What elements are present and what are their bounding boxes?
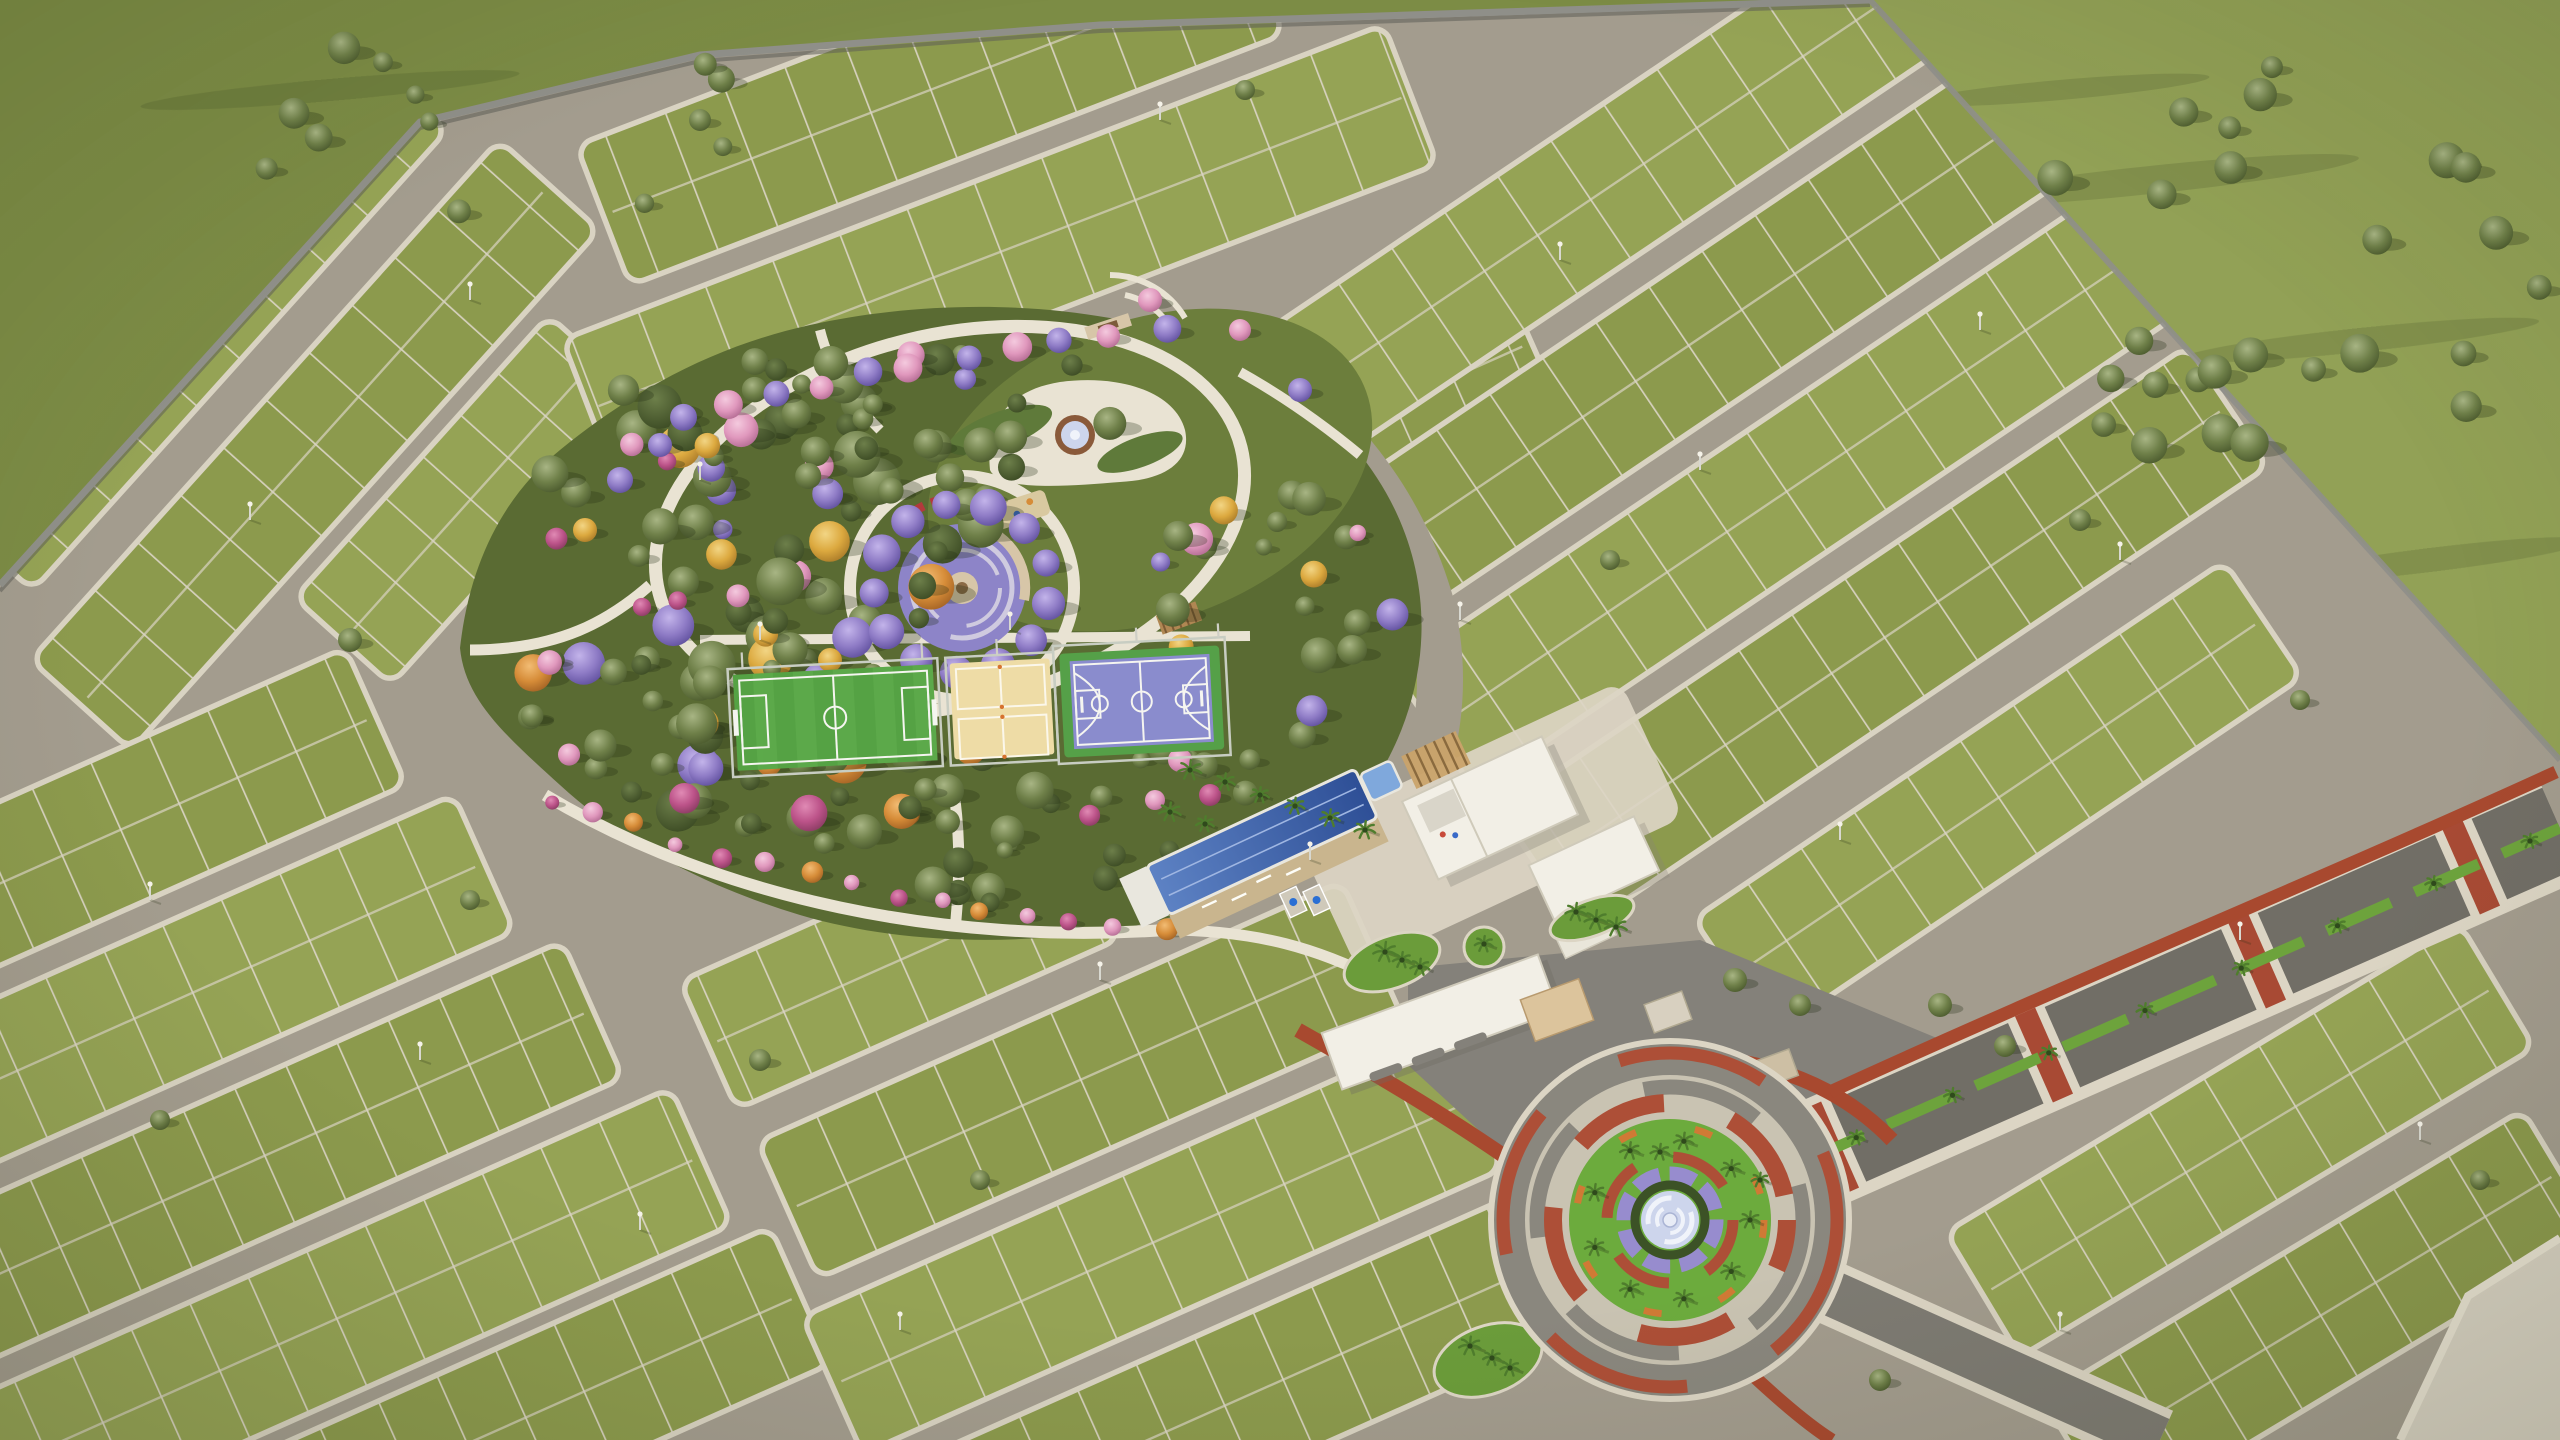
vignette	[0, 0, 2560, 1440]
aerial-render: Aerial 3D render of a master-planned res…	[0, 0, 2560, 1440]
masterplan-scene	[0, 0, 2560, 1440]
